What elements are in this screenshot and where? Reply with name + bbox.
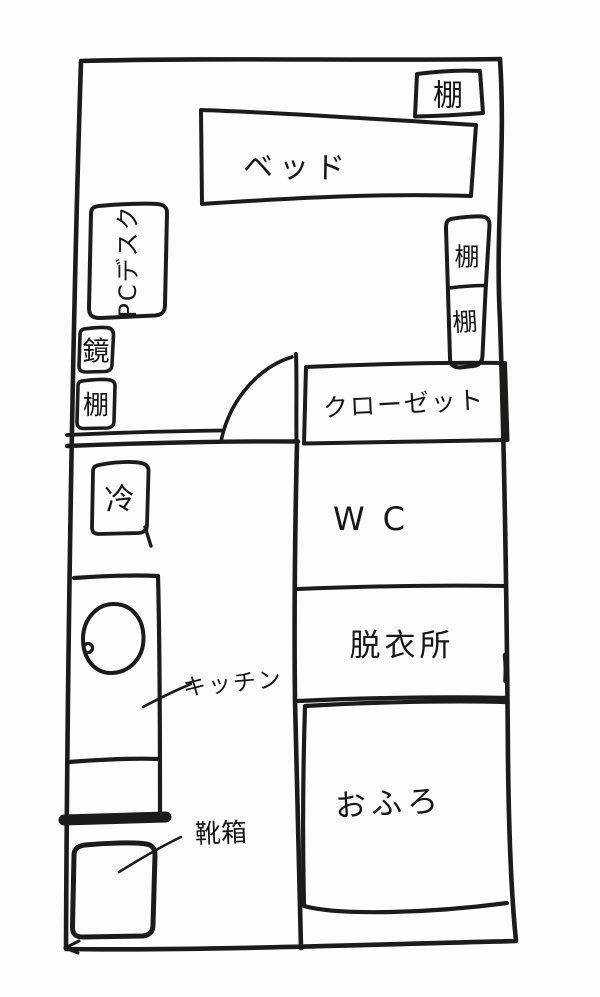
floor-plan-sheet: ベッド 棚 PCデスク 鏡 棚 棚 棚 クローゼット WC 脱衣所 おふろ 冷 <box>0 0 600 997</box>
shelf-left-label: 棚 <box>83 391 109 421</box>
shelf-right-lower-label: 棚 <box>452 307 479 338</box>
right-wall-overlap-stroke <box>505 655 506 681</box>
mirror-label: 鏡 <box>83 337 110 368</box>
bed-label: ベッド <box>243 150 352 187</box>
wc-label: WC <box>333 500 423 538</box>
bath-label: おふろ <box>334 783 444 825</box>
fridge-label: 冷 <box>103 481 136 519</box>
floor-plan-drawing: ベッド 棚 PCデスク 鏡 棚 棚 棚 クローゼット WC 脱衣所 おふろ 冷 <box>0 0 600 997</box>
shelf-right-upper-label: 棚 <box>454 243 479 272</box>
door-leaf <box>296 354 297 440</box>
pc-desk-label: PCデスク <box>114 204 142 317</box>
shelf-top-right-label: 棚 <box>433 79 463 114</box>
shoe-box-label: 靴箱 <box>194 818 247 850</box>
dressing-room-label: 脱衣所 <box>350 628 455 664</box>
entrance-step-bar <box>64 817 166 820</box>
